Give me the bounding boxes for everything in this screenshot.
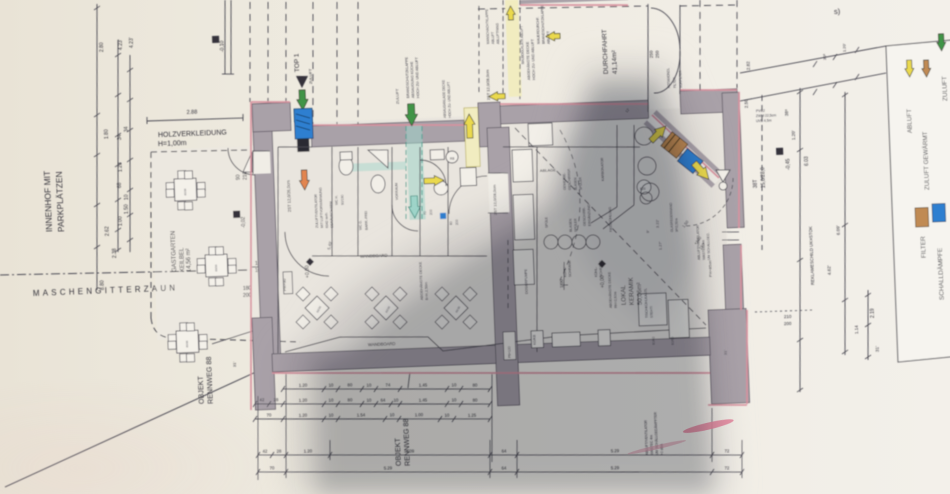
svg-text:ZULUFT: ZULUFT: [394, 88, 400, 104]
svg-text:60/36: 60/36: [185, 340, 189, 348]
svg-text:30⁸: 30⁸: [822, 54, 827, 61]
svg-text:200: 200: [429, 209, 433, 215]
svg-text:72: 72: [724, 448, 730, 453]
svg-text:ZULUFT: ZULUFT: [941, 76, 949, 101]
svg-text:60/36: 60/36: [214, 264, 218, 272]
svg-text:68: 68: [117, 182, 123, 188]
svg-text:34: 34: [117, 134, 123, 140]
svg-text:210: 210: [243, 171, 249, 180]
svg-text:ABLUFT: ABLUFT: [906, 109, 914, 134]
svg-text:4.23’: 4.23’: [129, 37, 135, 48]
svg-text:ABLUFT: ABLUFT: [546, 31, 550, 44]
svg-text:42: 42: [259, 397, 265, 402]
svg-text:2.62: 2.62: [105, 226, 111, 236]
svg-text:210: 210: [784, 314, 792, 319]
svg-text:72: 72: [724, 465, 730, 470]
svg-text:1.28: 1.28: [118, 162, 124, 172]
svg-text:31’: 31’: [875, 346, 880, 352]
svg-text:VORRAUM: VORRAUM: [394, 182, 399, 200]
svg-text:BARR.-FREI: BARR.-FREI: [364, 211, 369, 230]
svg-text:90: 90: [236, 174, 242, 180]
svg-text:WC D.: WC D.: [359, 220, 363, 230]
svg-text:250: 250: [655, 50, 660, 58]
svg-text:WANDBOARD: WANDBOARD: [360, 253, 388, 259]
svg-text:6342 m³/h: 6342 m³/h: [324, 213, 329, 229]
svg-text:200: 200: [784, 321, 792, 326]
svg-text:70: 70: [423, 211, 427, 215]
svg-text:38⁸: 38⁸: [784, 109, 789, 116]
svg-text:60/36: 60/36: [183, 188, 187, 196]
svg-text:PH+90: PH+90: [282, 278, 287, 291]
svg-text:1.80: 1.80: [104, 129, 110, 139]
svg-text:R8: R8: [450, 157, 455, 161]
svg-text:VORFILTER: VORFILTER: [678, 70, 683, 88]
svg-text:31’: 31’: [723, 350, 728, 356]
svg-text:90/190: 90/190: [341, 194, 345, 205]
svg-text:2.38: 2.38: [112, 248, 118, 258]
svg-text:2.80: 2.80: [99, 42, 105, 52]
svg-text:250: 250: [649, 50, 654, 58]
svg-text:1.50: 1.50: [124, 204, 130, 214]
svg-text:ABLUFTFANG: ABLUFTFANG: [495, 23, 500, 45]
svg-text:6.09’: 6.09’: [836, 225, 841, 235]
svg-text:s): s): [834, 7, 841, 16]
svg-text:80: 80: [449, 221, 453, 225]
svg-text:38T: 38T: [753, 179, 759, 188]
svg-text:31': 31': [232, 361, 237, 367]
svg-text:34: 34: [124, 126, 130, 132]
svg-text:2.50: 2.50: [744, 99, 749, 108]
svg-text:TOP 1: TOP 1: [293, 53, 301, 72]
svg-text:2.82: 2.82: [746, 61, 751, 70]
svg-text:KEILBEL: KEILBEL: [179, 247, 186, 272]
svg-text:4.23’: 4.23’: [118, 39, 124, 50]
svg-text:1.14: 1.14: [854, 325, 859, 334]
svg-text:2.88: 2.88: [186, 110, 197, 116]
svg-text:ABLUFT: ABLUFT: [491, 32, 495, 44]
svg-text:-0,45: -0,45: [786, 158, 792, 170]
svg-text:4.62’: 4.62’: [827, 265, 832, 275]
svg-text:H=1,00m: H=1,00m: [158, 140, 187, 148]
svg-text:28: 28: [273, 397, 279, 402]
svg-text:15,0/28,0: 15,0/28,0: [760, 167, 767, 188]
svg-text:1.00: 1.00: [118, 216, 124, 226]
svg-text:FILTER: FILTER: [920, 236, 928, 258]
svg-text:-0,02: -0,02: [241, 216, 247, 228]
svg-text:ZULUFT: ZULUFT: [307, 68, 313, 84]
svg-text:UVB 4,5m: UVB 4,5m: [756, 118, 772, 123]
svg-text:1.20’: 1.20’: [791, 130, 796, 140]
svg-text:14,56 m²: 14,56 m²: [186, 248, 193, 272]
svg-text:2.19: 2.19: [870, 308, 876, 318]
svg-text:6.03: 6.03: [804, 156, 810, 166]
svg-text:+0,00: +0,00: [304, 265, 310, 278]
svg-text:10: 10: [124, 194, 130, 200]
svg-text:WC H.: WC H.: [335, 195, 339, 205]
svg-text:70: 70: [266, 412, 272, 417]
svg-text:ZWM 22,5cm: ZWM 22,5cm: [756, 113, 776, 118]
svg-text:1.20’: 1.20’: [842, 43, 847, 52]
svg-text:200: 200: [455, 219, 459, 225]
svg-text:PVC2: PVC2: [756, 109, 765, 113]
